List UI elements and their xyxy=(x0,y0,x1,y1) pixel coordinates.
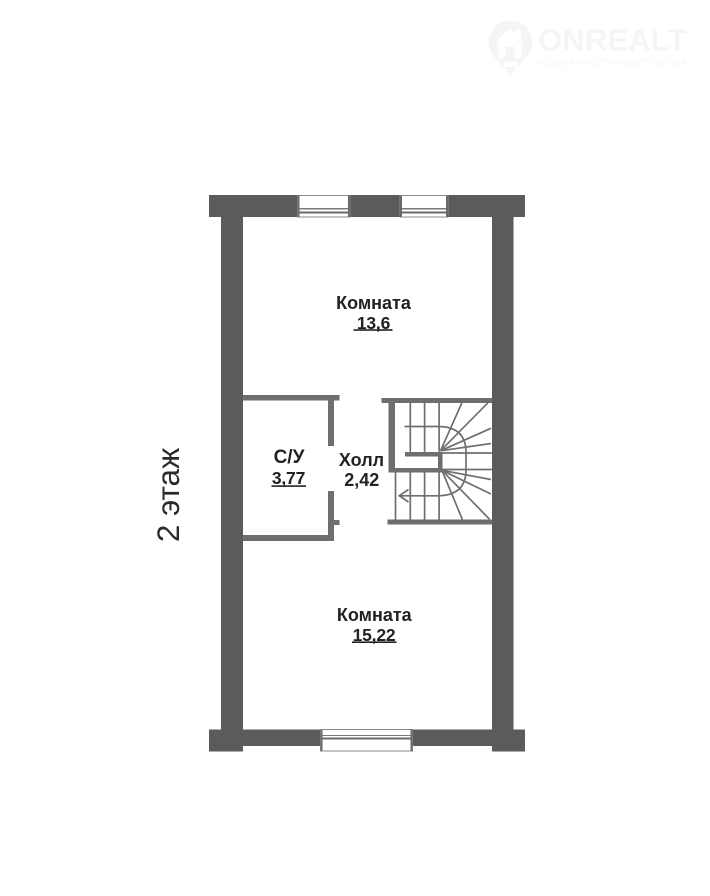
svg-text:ONREALT: ONREALT xyxy=(538,23,687,58)
svg-text:НЕДВИЖИМОСТЬ ВАШЕГО ГОРОДА: НЕДВИЖИМОСТЬ ВАШЕГО ГОРОДА xyxy=(539,58,687,69)
